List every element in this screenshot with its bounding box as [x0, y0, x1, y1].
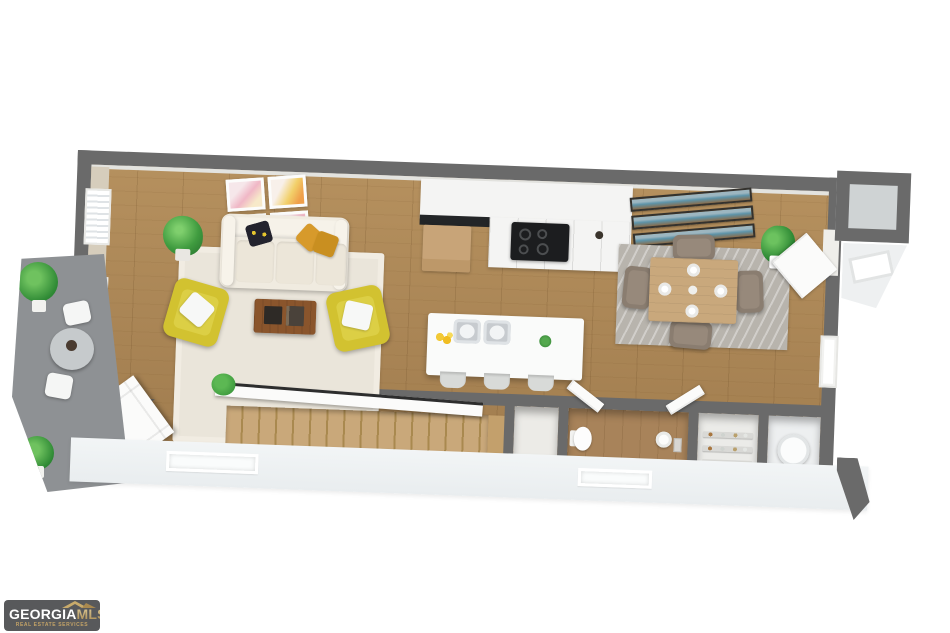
chair-cushion	[677, 238, 711, 257]
porch-plant-bottom	[20, 436, 54, 470]
plant-pot	[175, 249, 190, 262]
chair-cushion	[673, 323, 709, 346]
porch-plant-pot	[28, 466, 44, 478]
sofa-cushion	[235, 240, 275, 283]
dining-chair-right	[735, 270, 764, 313]
porch-table-decor	[66, 340, 77, 351]
georgia-mls-logo: GEORGIAMLS REAL ESTATE SERVICES	[4, 600, 100, 631]
fruit-bowl	[435, 331, 454, 346]
bay-window	[848, 250, 894, 284]
basin-inner	[459, 324, 475, 339]
porch-table	[50, 328, 94, 370]
porch-plant-top	[18, 262, 58, 302]
window-right-wall	[819, 335, 839, 388]
sink-basin-left	[453, 319, 481, 344]
burner	[536, 243, 548, 255]
chair-cushion	[739, 274, 760, 309]
logo-tagline: REAL ESTATE SERVICES	[4, 622, 100, 628]
exterior-bump-out	[835, 171, 912, 244]
dining-table	[648, 257, 738, 324]
logo-text-georgia: GEORGIA	[9, 606, 77, 622]
abstract-art	[271, 178, 305, 206]
bar-stool	[484, 373, 511, 390]
burner	[537, 229, 547, 239]
centerpiece	[688, 285, 697, 294]
place-setting	[687, 263, 700, 276]
bar-stool	[527, 375, 554, 392]
place-setting	[714, 284, 727, 297]
cooktop	[510, 222, 569, 262]
place-setting	[658, 282, 671, 295]
window-blinds	[86, 190, 110, 243]
chair-cushion	[626, 270, 649, 306]
pedestal-sink	[655, 431, 672, 448]
art-frame	[267, 174, 307, 209]
sofa-arm-left	[221, 215, 236, 285]
sofa	[219, 213, 350, 292]
washer-tank	[777, 434, 810, 467]
window-living-1	[84, 188, 112, 245]
art-frame	[226, 177, 266, 212]
potted-plant-living	[162, 215, 206, 263]
basin-inner	[489, 325, 505, 340]
toilet	[573, 426, 592, 451]
place-setting	[685, 304, 698, 317]
coffee-table-books	[264, 306, 283, 325]
dining-chair-top	[673, 234, 715, 261]
coffee-table-books	[286, 306, 305, 327]
floor-plan-render: GEORGIAMLS REAL ESTATE SERVICES	[0, 0, 950, 633]
logo-text-mls: MLS	[77, 606, 100, 622]
exterior-bay	[841, 243, 907, 309]
skylight-left	[166, 451, 259, 474]
burner	[518, 244, 528, 254]
bar-stool	[440, 371, 467, 388]
pantry-shelf	[702, 445, 752, 453]
island-plant	[539, 335, 551, 347]
porch-plant-pot	[32, 300, 46, 312]
kitchen-island	[426, 313, 584, 381]
armchair-pillow	[341, 300, 374, 331]
bathroom-art	[673, 438, 682, 452]
logo-wordmark: GEORGIAMLS	[9, 606, 100, 622]
sink-basin-right	[483, 320, 511, 345]
armchair-right	[324, 283, 391, 353]
coffee-table	[253, 299, 316, 335]
refrigerator	[422, 225, 472, 273]
burner	[519, 228, 531, 240]
abstract-art	[229, 181, 263, 209]
dining-chair-bottom	[668, 319, 712, 351]
pantry-shelf	[703, 431, 753, 439]
porch-chair-1	[62, 300, 92, 327]
skylight-right	[578, 468, 653, 489]
porch-chair-2	[44, 372, 74, 400]
